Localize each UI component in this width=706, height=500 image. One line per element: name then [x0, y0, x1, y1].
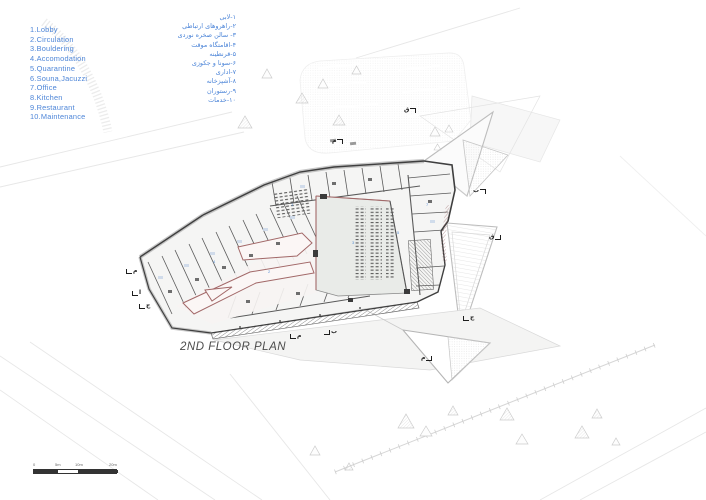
section-marker-label: م: [297, 333, 301, 339]
section-cut-icon: [426, 356, 432, 361]
section-marker: ج: [463, 315, 474, 321]
section-marker: م: [290, 333, 301, 339]
section-marker-label: م: [133, 268, 137, 274]
section-cut-icon: [480, 189, 486, 194]
legend-farsi: ۱-لابی ۲-راهروهای ارتباطی ۳- سالن صخره ن…: [148, 13, 236, 105]
section-marker: ا: [132, 290, 141, 296]
legend-item-fa: ۱۰-خدمات: [148, 96, 236, 105]
section-marker-label: ج: [470, 315, 474, 321]
room-number: 7: [426, 203, 428, 207]
section-marker: ب: [473, 188, 486, 194]
legend-item-fa: ۶-سونا و جکوزی: [148, 59, 236, 68]
scale-bar-labels: 0 5m 10m 20m: [33, 462, 117, 467]
room-number: 3: [352, 241, 354, 245]
section-marker: ق: [489, 234, 501, 240]
legend-item-fa: ۲-راهروهای ارتباطی: [148, 22, 236, 31]
section-cut-icon: [132, 291, 138, 296]
scale-bar-graphic: [33, 469, 117, 474]
section-cut-icon: [410, 108, 416, 113]
building: [140, 161, 455, 339]
section-marker-label: ج: [146, 303, 150, 309]
section-marker: م: [332, 138, 343, 144]
section-marker: م: [421, 355, 432, 361]
section-cut-icon: [463, 316, 469, 321]
legend-item-fa: ۵-قرنطینه: [148, 50, 236, 59]
scale-label: 10m: [75, 462, 83, 467]
hall-seating: [354, 206, 394, 280]
room-number: 2: [268, 270, 270, 274]
legend-item: 9.Restaurant: [30, 103, 87, 113]
section-marker-label: ا: [139, 290, 141, 296]
section-marker-label: ق: [489, 234, 494, 240]
room-number: 4: [213, 260, 215, 264]
legend-english: 1.Lobby 2.Circulation 3.Bouldering 4.Acc…: [30, 25, 87, 122]
floor-plan-sheet: 1.Lobby 2.Circulation 3.Bouldering 4.Acc…: [0, 0, 706, 500]
section-marker-label: م: [332, 138, 336, 144]
section-cut-icon: [324, 330, 330, 335]
legend-item: 8.Kitchen: [30, 93, 87, 103]
plan-title: 2ND FLOOR PLAN: [180, 341, 286, 353]
stair-run: [408, 239, 433, 290]
legend-item-fa: ۴-اقامتگاه موقت: [148, 41, 236, 50]
legend-item-fa: ۸-آشپزخانه: [148, 77, 236, 86]
legend-item: 2.Circulation: [30, 35, 87, 45]
legend-item: 6.Souna,Jacuzzi: [30, 74, 87, 84]
section-cut-icon: [126, 269, 132, 274]
legend-item: 3.Bouldering: [30, 44, 87, 54]
section-cut-icon: [290, 334, 296, 339]
section-marker-label: ب: [473, 188, 479, 194]
section-marker: م: [126, 268, 137, 274]
room-number: 5: [397, 231, 399, 235]
legend-item: 1.Lobby: [30, 25, 87, 35]
section-marker: ق: [404, 107, 416, 113]
section-cut-icon: [337, 139, 343, 144]
scale-bar: 0 5m 10m 20m: [33, 462, 117, 476]
legend-item: 4.Accomodation: [30, 54, 87, 64]
section-cut-icon: [139, 304, 145, 309]
scale-label: 5m: [55, 462, 61, 467]
scale-label: 0: [33, 462, 35, 467]
floor-plan-drawing: [0, 0, 706, 500]
legend-item: 7.Office: [30, 83, 87, 93]
section-cut-icon: [495, 235, 501, 240]
room-number: 1: [291, 203, 293, 207]
scale-label: 20m: [109, 462, 117, 467]
legend-item-fa: ۹-رستوران: [148, 87, 236, 96]
parking-plaza: [300, 53, 560, 162]
section-marker: ج: [139, 303, 150, 309]
legend-item-fa: ۳- سالن صخره نوردی: [148, 31, 236, 40]
legend-item: 5.Quarantine: [30, 64, 87, 74]
legend-item: 10.Maintenance: [30, 112, 87, 122]
section-marker-label: ب: [331, 329, 337, 335]
section-marker-label: م: [421, 355, 425, 361]
legend-item-fa: ۱-لابی: [148, 13, 236, 22]
section-marker: ب: [324, 329, 337, 335]
section-marker-label: ق: [404, 107, 409, 113]
